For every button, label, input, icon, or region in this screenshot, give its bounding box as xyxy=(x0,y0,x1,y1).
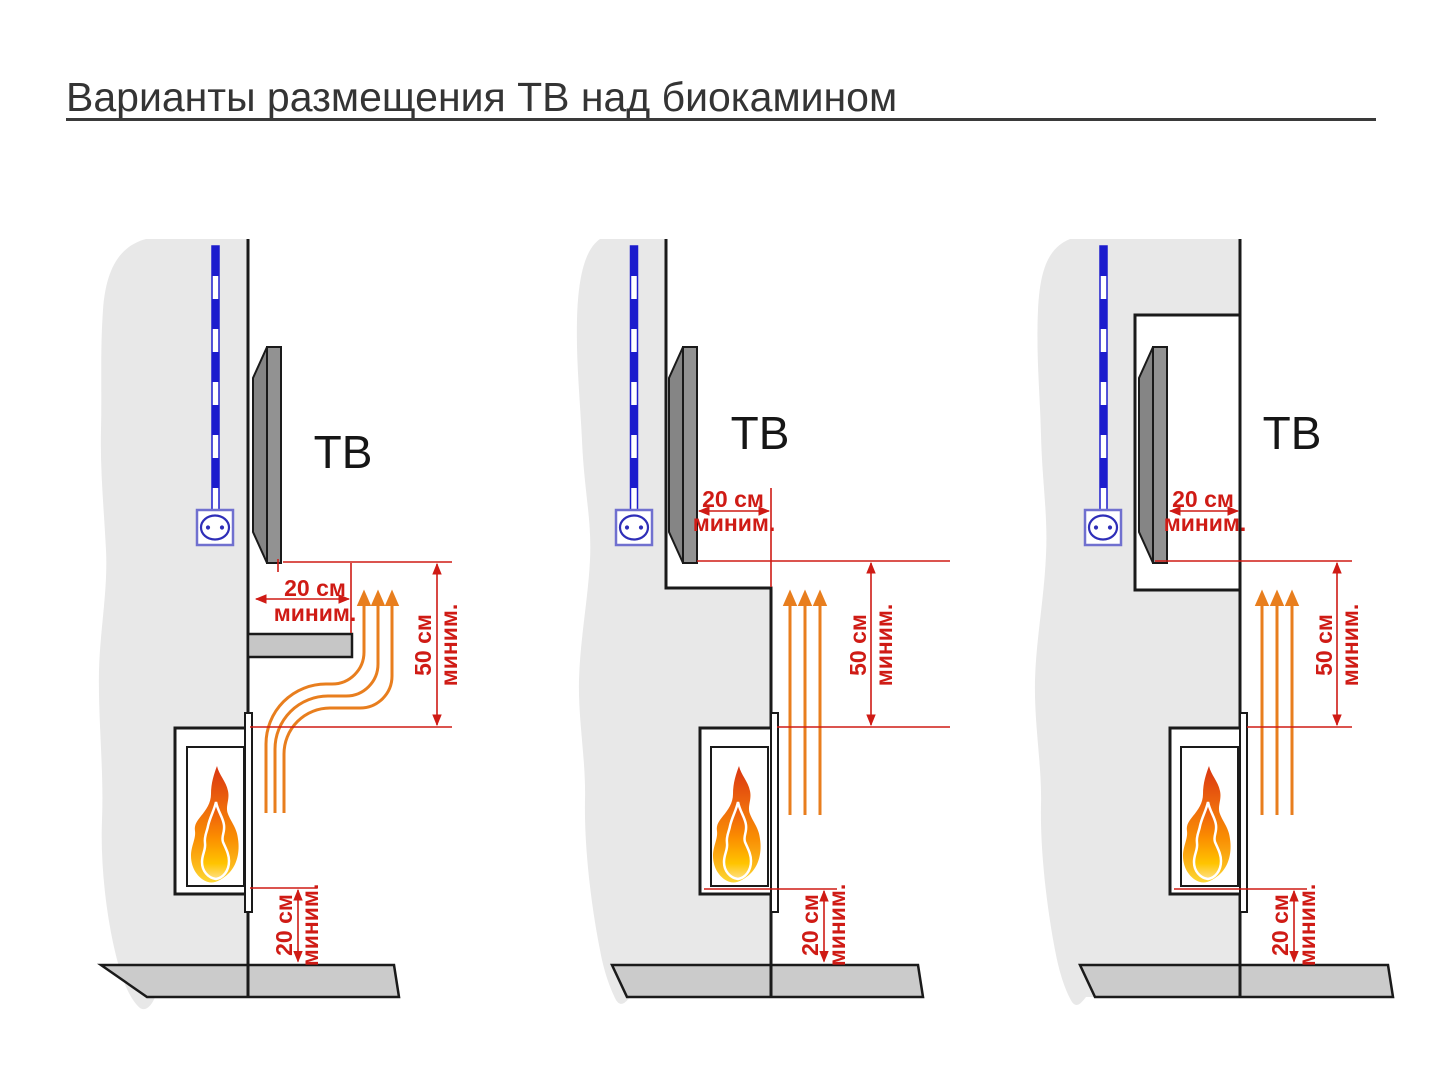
dim-bottom-value: 20 см xyxy=(1267,894,1293,956)
dim-top-value: 20 см xyxy=(1172,486,1234,512)
dimension-top-clearance: 20 см миним. xyxy=(256,559,356,633)
power-cable-icon xyxy=(1100,246,1107,511)
page-title: Варианты размещения ТВ над биокамином xyxy=(66,74,897,120)
tv-panel xyxy=(253,347,281,563)
dim-top-note: миним. xyxy=(693,510,776,536)
dim-side-value: 50 см xyxy=(845,614,871,676)
fireplace xyxy=(1170,713,1247,912)
dim-side-value: 50 см xyxy=(410,614,436,676)
tv-label: ТВ xyxy=(1263,407,1322,459)
dim-bottom-value: 20 см xyxy=(797,894,823,956)
dim-bottom-value: 20 см xyxy=(271,894,297,956)
dimension-top-clearance: 20 см миним. xyxy=(693,486,776,587)
dim-side-note: миним. xyxy=(871,604,897,687)
diagram-variant-wall-step: ТВ 20 см миним. 50 см миним. xyxy=(577,239,950,1004)
dim-bottom-note: миним. xyxy=(1294,884,1320,967)
dim-bottom-note: миним. xyxy=(297,884,323,967)
fireplace xyxy=(175,713,252,912)
dim-top-note: миним. xyxy=(274,600,357,626)
dim-side-note: миним. xyxy=(1337,604,1363,687)
diagram-canvas: Варианты размещения ТВ над биокамином ТВ xyxy=(0,0,1440,1080)
floor-slab xyxy=(101,965,399,997)
diagram-variant-shelf: ТВ 20 см миним. 50 см миним. xyxy=(99,239,462,1009)
heat-flow-arrows xyxy=(790,603,820,815)
dim-top-value: 20 см xyxy=(702,486,764,512)
page: Варианты размещения ТВ над биокамином ТВ xyxy=(0,0,1440,1080)
dim-side-value: 50 см xyxy=(1311,614,1337,676)
tv-label: ТВ xyxy=(314,426,373,478)
power-outlet-icon xyxy=(616,510,652,545)
power-cable-icon xyxy=(212,246,219,511)
fireplace xyxy=(700,713,778,912)
power-outlet-icon xyxy=(1085,510,1121,545)
diagram-variant-niche: ТВ 20 см миним. 50 см миним. xyxy=(1035,239,1393,1005)
floor-slab xyxy=(612,965,923,997)
dim-bottom-note: миним. xyxy=(824,884,850,967)
dim-side-note: миним. xyxy=(436,604,462,687)
power-cable-icon xyxy=(631,246,638,511)
dim-top-value: 20 см xyxy=(284,575,346,601)
protective-shelf xyxy=(248,634,352,657)
floor-slab xyxy=(1080,965,1393,997)
heat-flow-arrows xyxy=(1262,603,1292,815)
dimension-bottom-clearance: 20 см миним. xyxy=(250,884,323,967)
tv-label: ТВ xyxy=(731,407,790,459)
dim-top-note: миним. xyxy=(1164,510,1247,536)
power-outlet-icon xyxy=(197,510,233,545)
